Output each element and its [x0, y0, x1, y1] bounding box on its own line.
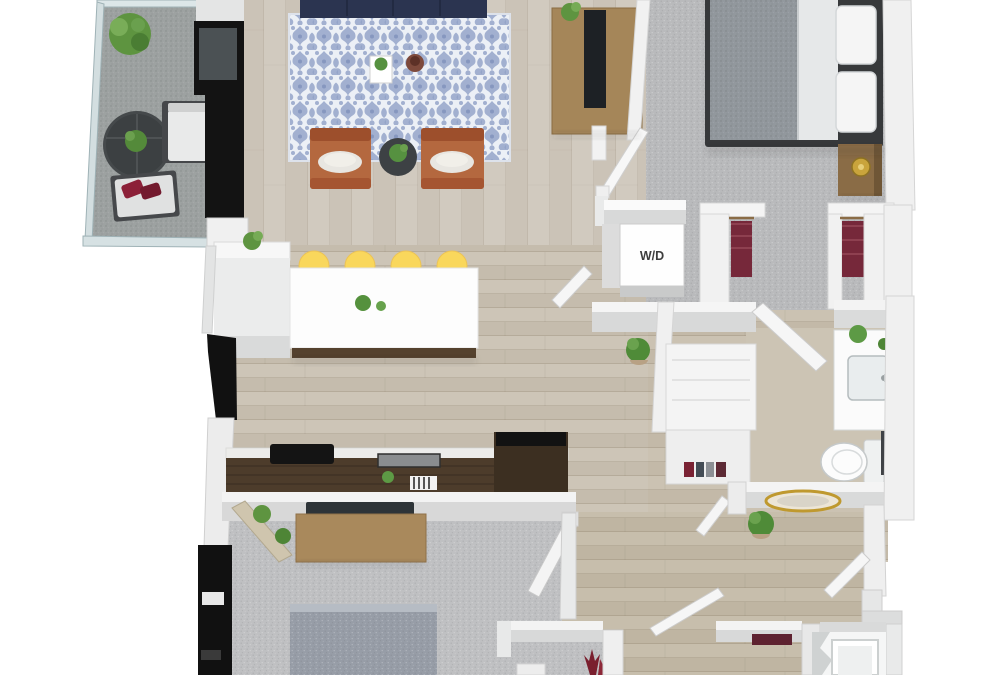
svg-text:W/D: W/D	[640, 249, 664, 263]
